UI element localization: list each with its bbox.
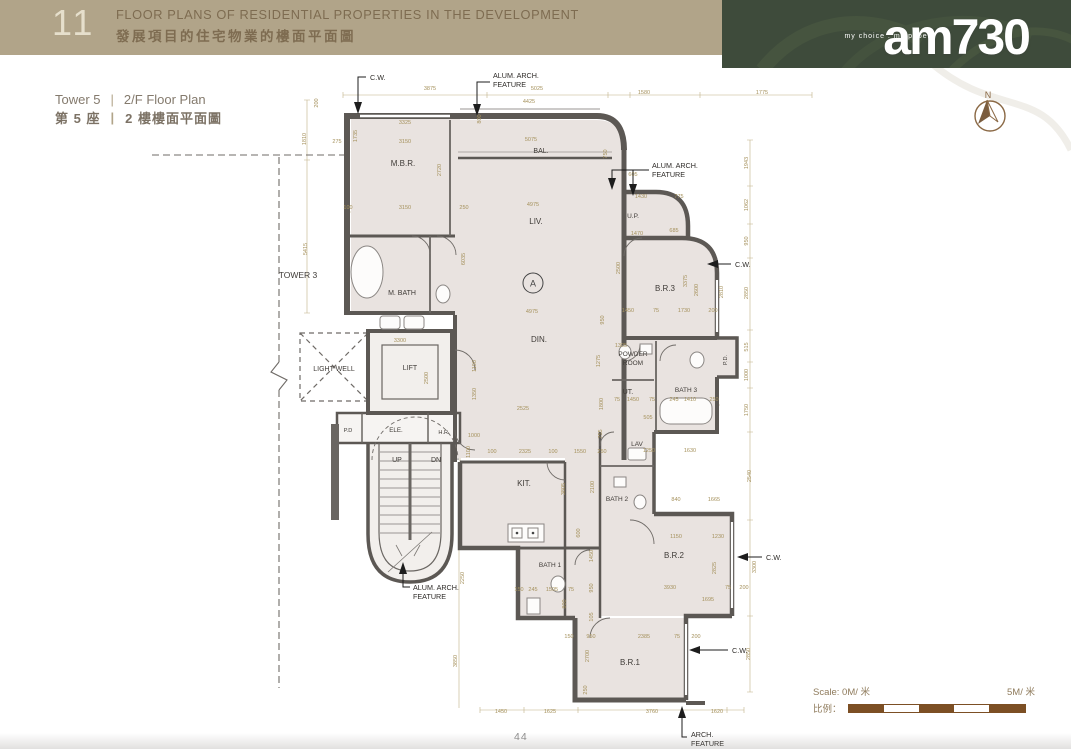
brand-logo: am730 — [883, 12, 1029, 62]
page-title-zh: 發展項目的住宅物業的樓面平面圖 — [116, 25, 579, 45]
dimension-label: 800 — [562, 599, 568, 608]
dimension-label: 2600 — [694, 284, 700, 296]
dimension-label: 1620 — [711, 709, 723, 715]
scale-label-zh: 比例： — [813, 701, 842, 715]
header-band: 11 FLOOR PLANS OF RESIDENTIAL PROPERTIES… — [0, 0, 722, 55]
dimension-label: 4975 — [526, 309, 538, 315]
dimension-label: 1100 — [472, 360, 478, 372]
unit-label: A — [530, 279, 536, 289]
dimension-label: 1470 — [631, 231, 643, 237]
separator: | — [111, 92, 114, 107]
tower-label-zh: 第 5 座 — [55, 108, 100, 127]
room-label: ELE. — [389, 427, 403, 434]
annotation-label: ALUM. ARCH.FEATURE — [652, 161, 698, 179]
dimension-label: 2500 — [616, 262, 622, 274]
dimension-label: 1580 — [638, 90, 650, 96]
annotation-label: C.W. — [735, 260, 751, 269]
annotation-label: C.W. — [766, 553, 782, 562]
dimension-label: 3325 — [399, 120, 411, 126]
dimension-label: 1150 — [670, 534, 682, 540]
room-label: B.R.1 — [620, 658, 641, 667]
floor-label-zh: 2 樓樓面平面圖 — [125, 108, 222, 127]
dimension-label: 1775 — [756, 90, 768, 96]
room-label: P.D. — [723, 354, 729, 365]
dimension-label: 1750 — [744, 404, 750, 416]
dimension-label: 2825 — [712, 562, 718, 574]
plan-subtitle-zh: 第 5 座 | 2 樓樓面平面圖 — [55, 108, 222, 126]
room-label: U.P. — [627, 213, 639, 220]
room-label: B.R.2 — [664, 551, 685, 560]
room-label: LIGHT WELL — [313, 366, 355, 373]
dimension-label: 1625 — [544, 709, 556, 715]
dimension-label: 200 — [691, 634, 700, 640]
dimension-label: 5415 — [303, 243, 309, 255]
compass: N — [964, 88, 1016, 142]
dimension-label: 5075 — [525, 137, 537, 143]
plan-subtitle-en: Tower 5 | 2/F Floor Plan — [55, 90, 222, 108]
dimension-label: 100 — [487, 449, 496, 455]
dimension-label: 1410 — [684, 397, 696, 403]
floor-label-en: 2/F Floor Plan — [124, 92, 206, 107]
dimension-label: 75 — [653, 308, 659, 314]
dimension-label: 250 — [459, 205, 468, 211]
dimension-label: 200 — [739, 585, 748, 591]
tower-boundary-line — [152, 155, 345, 688]
dimension-label: 2810 — [719, 286, 725, 298]
dimension-label: 1230 — [712, 534, 724, 540]
dimension-label: 1505 — [546, 587, 558, 593]
room-label: BAL. — [533, 148, 548, 155]
annotation-label: C.W. — [732, 646, 748, 655]
separator: | — [110, 110, 115, 125]
dimension-label: 1250 — [643, 448, 655, 454]
dimension-label: 800 — [477, 114, 483, 123]
room-label: LAV — [631, 441, 643, 448]
dimension-label: 75 — [725, 585, 731, 591]
dimension-label: 5025 — [531, 86, 543, 92]
page-title-en: FLOOR PLANS OF RESIDENTIAL PROPERTIES IN… — [116, 7, 579, 22]
room-label: UT. — [623, 389, 634, 396]
dimension-label: 245 — [528, 587, 537, 593]
room-label: TOWER 3 — [279, 270, 318, 280]
room-label: DIN. — [531, 335, 547, 344]
dimension-label: 1695 — [702, 597, 714, 603]
dimension-label: 2250 — [460, 572, 466, 584]
compass-north-label: N — [985, 90, 992, 100]
dimension-label: 1630 — [684, 448, 696, 454]
dimension-label: 275 — [332, 139, 341, 145]
dimension-label: 1062 — [744, 199, 750, 211]
dimension-label: 1800 — [599, 398, 605, 410]
dimension-label: 200 — [314, 98, 320, 107]
dimension-label: 105 — [589, 612, 595, 621]
dimension-label: 75 — [674, 634, 680, 640]
dimension-label: 1430 — [635, 194, 647, 200]
dimension-label: 4425 — [523, 99, 535, 105]
scale-start-label: Scale: 0M/ 米 — [813, 684, 870, 698]
dimension-label: 750 — [603, 149, 609, 158]
dimension-label: 2325 — [519, 449, 531, 455]
dimension-label: 605 — [628, 172, 637, 178]
dimension-label: 200 — [708, 308, 717, 314]
dimension-label: 3805 — [561, 483, 567, 495]
dimension-label: 2700 — [585, 650, 591, 662]
dimension-label: 2500 — [424, 372, 430, 384]
room-label: DN — [431, 457, 441, 464]
room-label: BATH 3 — [675, 387, 698, 394]
dimension-label: 1943 — [744, 157, 750, 169]
dimension-label: 755 — [598, 429, 604, 438]
dimension-label: 1350 — [472, 388, 478, 400]
dimension-label: 600 — [576, 528, 582, 537]
room-label: BATH 2 — [606, 496, 629, 503]
dimension-label: 2540 — [747, 470, 753, 482]
room-label: H.R. — [438, 430, 450, 436]
dimension-label: 1735 — [353, 130, 359, 142]
annotation-label: C.W. — [370, 73, 386, 82]
dimension-label: 1000 — [744, 369, 750, 381]
brand-band: my choice . my paper am730 — [722, 0, 1071, 68]
plan-subtitle: Tower 5 | 2/F Floor Plan 第 5 座 | 2 樓樓面平面… — [55, 90, 222, 126]
dimension-label: 6035 — [461, 253, 467, 265]
dimension-label: 1730 — [678, 308, 690, 314]
scale-bar — [848, 704, 1026, 713]
dimension-label: 3850 — [453, 655, 459, 667]
dimension-label: 3300 — [394, 338, 406, 344]
dimension-label: 950 — [600, 315, 606, 324]
brochure-page: A 38755025442515801775332531502751735181… — [0, 0, 1071, 749]
dimension-label: 505 — [643, 415, 652, 421]
dimension-label: 2385 — [638, 634, 650, 640]
dimension-label: 950 — [589, 583, 595, 592]
scale-end-label: 5M/ 米 — [1007, 684, 1035, 698]
dimension-label: 1275 — [596, 355, 602, 367]
room-label: P.D — [344, 428, 353, 434]
dimension-label: 75 — [568, 587, 574, 593]
dimension-label: 100 — [343, 205, 352, 211]
dimension-label: 2720 — [437, 164, 443, 176]
dimension-label: 1450 — [622, 308, 634, 314]
dimension-label: 1000 — [468, 433, 480, 439]
dimension-label: 3300 — [752, 561, 758, 573]
dimension-label: 1450 — [589, 550, 595, 562]
room-label: M. BATH — [388, 290, 416, 297]
dimension-label: 2850 — [744, 287, 750, 299]
dimension-label: 3150 — [399, 205, 411, 211]
dimension-label: 3930 — [664, 585, 676, 591]
dimension-label: 950 — [586, 634, 595, 640]
dimension-label: 3150 — [399, 139, 411, 145]
room-label: UP — [392, 457, 402, 464]
dimension-label: 245 — [669, 397, 678, 403]
dimension-label: 100 — [548, 449, 557, 455]
room-label: BATH 1 — [539, 562, 562, 569]
room-label: LIFT — [403, 365, 418, 372]
page-edge-shadow — [0, 733, 1071, 749]
dimension-label: 1450 — [627, 397, 639, 403]
tower-label-en: Tower 5 — [55, 92, 101, 107]
dimension-label: 2525 — [517, 406, 529, 412]
dimension-label: 250 — [597, 449, 606, 455]
dimension-label: 4975 — [527, 202, 539, 208]
dimension-label: 150 — [514, 587, 523, 593]
scale-block: Scale: 0M/ 米 5M/ 米 比例： — [813, 684, 1035, 715]
room-label: B.R.3 — [655, 284, 676, 293]
dimension-label: 950 — [744, 236, 750, 245]
room-label: KIT. — [517, 479, 531, 488]
dimension-label: 1665 — [708, 497, 720, 503]
annotation-label: ALUM. ARCH.FEATURE — [413, 583, 459, 601]
dimension-label: 840 — [671, 497, 680, 503]
dimension-label: 2100 — [590, 481, 596, 493]
dimension-label: 1100 — [466, 446, 472, 458]
compass-needle-outline — [987, 100, 998, 122]
room-label: M.B.R. — [391, 159, 415, 168]
dimension-label: 775 — [674, 194, 683, 200]
dimension-label: 1450 — [495, 709, 507, 715]
dimension-label: 75 — [649, 397, 655, 403]
dimension-label: 250 — [709, 397, 718, 403]
dimension-label: 3375 — [683, 275, 689, 287]
section-number: 11 — [52, 2, 95, 44]
room-label: LIV. — [529, 217, 543, 226]
dimension-label: 685 — [669, 228, 678, 234]
dimension-label: 515 — [744, 342, 750, 351]
dimension-label: 1810 — [302, 133, 308, 145]
dimension-label: 75 — [614, 397, 620, 403]
dimension-label: 3760 — [646, 709, 658, 715]
dimension-label: 1550 — [574, 449, 586, 455]
dimension-label: 150 — [564, 634, 573, 640]
dimension-label: 3875 — [424, 86, 436, 92]
dimension-label: 250 — [583, 685, 589, 694]
dimension-label: 1305 — [615, 343, 627, 349]
